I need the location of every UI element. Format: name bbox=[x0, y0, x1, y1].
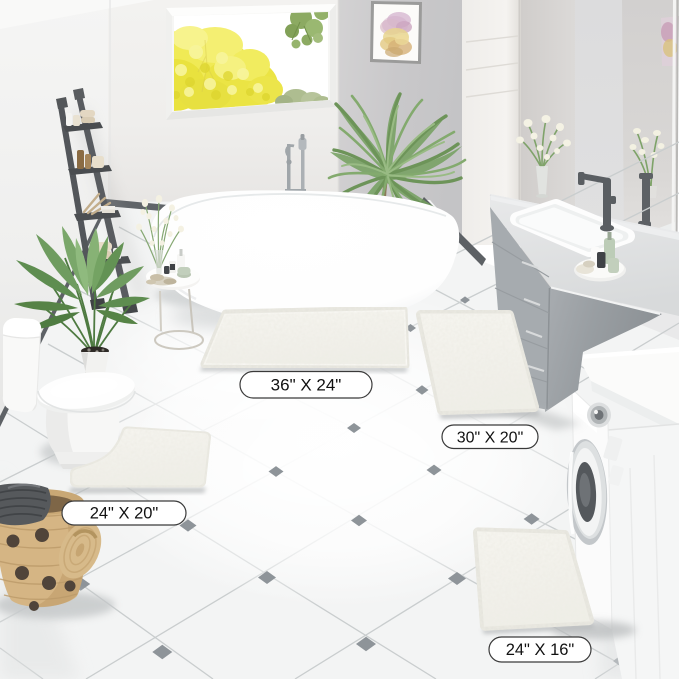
svg-text:24" X 20": 24" X 20" bbox=[90, 505, 159, 523]
svg-text:36" X 24": 36" X 24" bbox=[271, 376, 342, 395]
svg-text:24" X 16": 24" X 16" bbox=[506, 641, 575, 659]
svg-text:30" X 20": 30" X 20" bbox=[457, 430, 524, 447]
